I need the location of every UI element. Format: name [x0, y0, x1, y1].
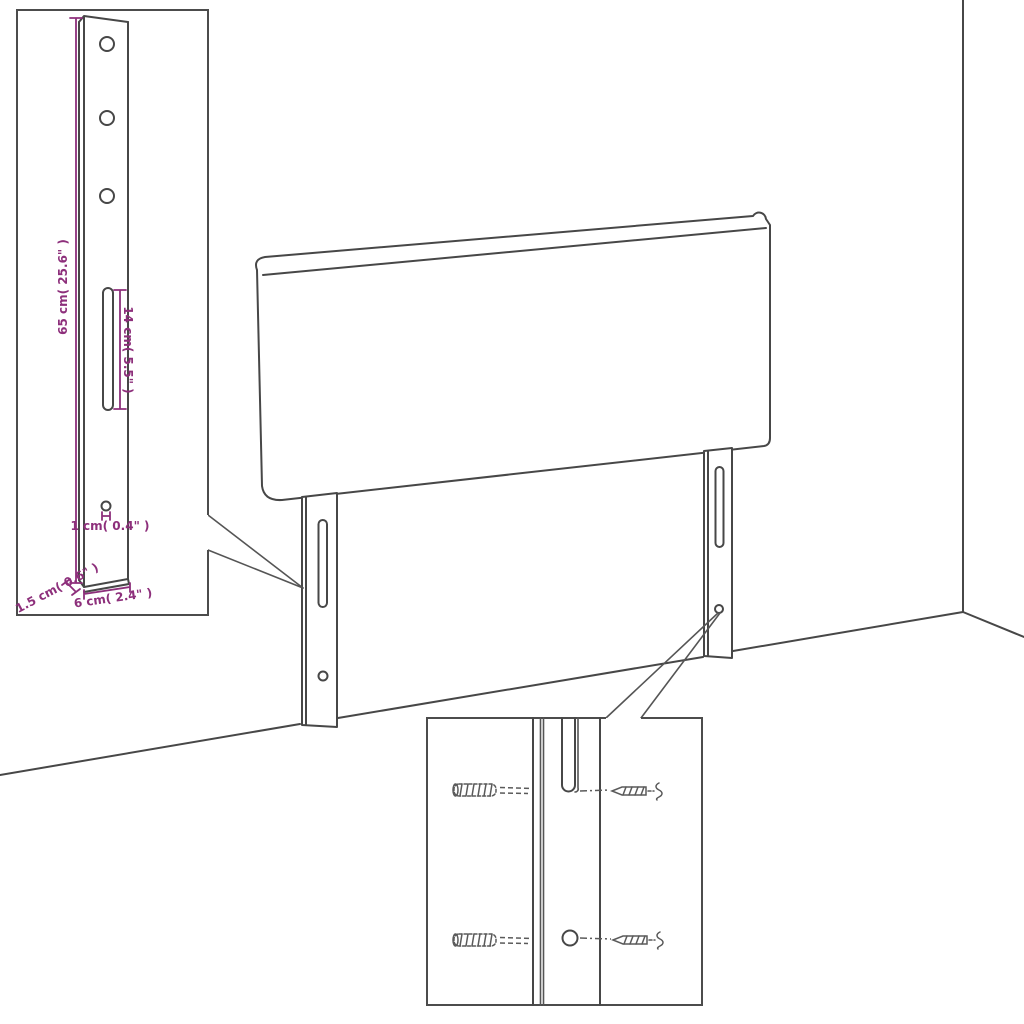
mounting-detail-inset	[427, 718, 702, 1005]
floor-line-left	[0, 724, 300, 775]
headboard-left-leg	[302, 493, 337, 727]
callout-right-line-1	[606, 613, 718, 718]
floor-line-right	[733, 612, 963, 651]
callout-wedge-right	[606, 613, 720, 718]
callout-left-line-1	[208, 515, 303, 588]
dim-label-65cm: 65 cm( 25.6" )	[56, 239, 70, 335]
dim-label-1cm: 1 cm( 0.4" )	[71, 519, 150, 533]
diagram-stage: 65 cm( 25.6" ) 14 cm( 5.5" ) 1 cm( 0.4" …	[0, 0, 1024, 1024]
leader-hole-to-screw	[580, 938, 611, 939]
headboard-panel	[256, 213, 770, 500]
dim-label-14cm: 14 cm( 5.5" )	[121, 306, 135, 393]
callout-left-line-2	[208, 550, 303, 588]
headboard-right-leg	[704, 448, 732, 658]
floor-line-corner-right	[963, 612, 1024, 637]
headboard-diagram: 65 cm( 25.6" ) 14 cm( 5.5" ) 1 cm( 0.4" …	[0, 0, 1024, 1024]
mounting-inset-border	[427, 718, 702, 1005]
callout-wedge-left	[208, 515, 303, 588]
headboard-panel-outline	[256, 213, 770, 500]
leg-detail-inset: 65 cm( 25.6" ) 14 cm( 5.5" ) 1 cm( 0.4" …	[13, 10, 208, 616]
